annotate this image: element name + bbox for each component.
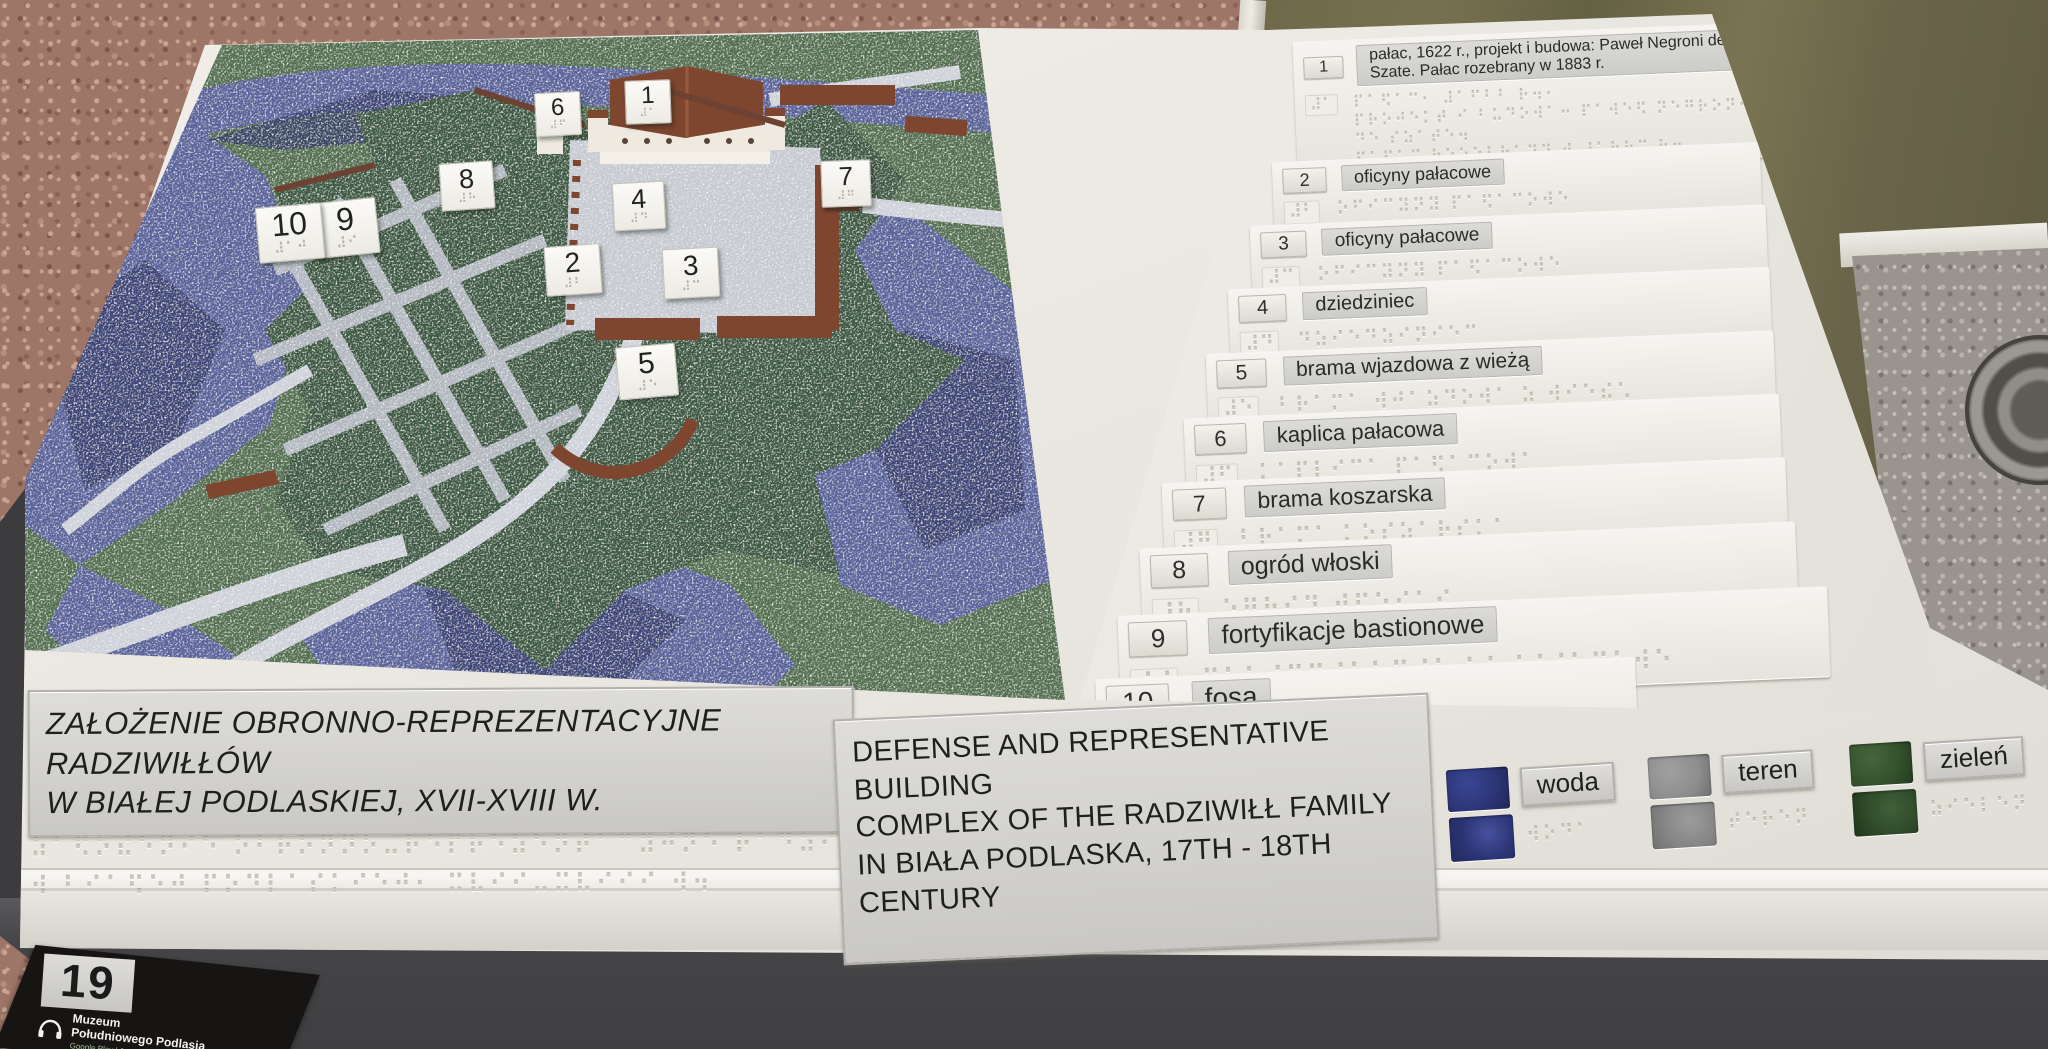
- legend-label: brama wjazdowa z wieżą: [1283, 346, 1543, 386]
- legend-label: oficyny pałacowe: [1341, 159, 1505, 192]
- legend-number: 1: [1303, 55, 1344, 79]
- legend-number: 9: [1128, 619, 1189, 656]
- marker-number: 1: [641, 82, 655, 109]
- legend-label: brama koszarska: [1244, 477, 1446, 517]
- braille-text: ⠺⠕⠙⠁: [1525, 819, 1593, 847]
- legend-number: 2: [1282, 166, 1327, 193]
- marker-braille: ⠼⠛: [822, 189, 870, 203]
- legend-label: oficyny pałacowe: [1321, 222, 1493, 256]
- marker-braille: ⠼⠃: [547, 275, 602, 292]
- polish-title-plate: ZAŁOŻENIE OBRONNO-REPREZENTACYJNE RADZIW…: [28, 686, 855, 837]
- greenery-swatch: [1849, 741, 1914, 787]
- map-marker-tile: 3⠼⠉: [662, 247, 721, 299]
- map-marker-tile: 1⠼⠁: [624, 79, 671, 124]
- marker-braille: ⠼⠁: [626, 107, 670, 120]
- marker-number: 4: [630, 184, 647, 215]
- map-marker-tile: 2⠼⠃: [543, 243, 602, 296]
- marker-number: 5: [637, 346, 657, 380]
- polish-title-line2: W BIAŁEJ PODLASKIEJ, XVII-XVIII W.: [46, 779, 836, 823]
- exhibit-number: 19: [41, 954, 136, 1013]
- terrain-swatch: [1647, 754, 1712, 800]
- marker-number: 10: [270, 205, 309, 244]
- marker-braille: ⠼⠙: [614, 212, 665, 227]
- headphones-icon: [37, 1017, 65, 1040]
- legend-label: dziedziniec: [1302, 287, 1428, 320]
- marker-number: 6: [550, 94, 565, 122]
- marker-braille: ⠼⠉: [664, 279, 719, 295]
- marker-number: 3: [682, 250, 699, 282]
- marker-braille: ⠼⠁⠚: [259, 239, 324, 260]
- map-marker-tile: 7⠼⠛: [820, 159, 872, 207]
- marker-number: 8: [458, 164, 475, 195]
- legend-label: kaplica pałacowa: [1263, 413, 1458, 452]
- map-marker-tile: 4⠼⠙: [612, 181, 666, 232]
- legend-number: 5: [1216, 358, 1267, 388]
- legend-label: ogród włoski: [1227, 544, 1393, 585]
- museum-tactile-exhibit: 1⠼⠁ 2⠼⠃ 3⠼⠉ 4⠼⠙ 5⠼⠑ 6⠼⠋ 7⠼⠛ 8⠼⠓ 9⠼⠊ 10⠼⠁…: [0, 0, 2048, 1049]
- map-marker-tile: 10⠼⠁⠚: [255, 202, 326, 263]
- legend-label: pałac, 1622 r., projekt i budowa: Paweł …: [1356, 29, 1752, 86]
- legend-number: 8: [1150, 552, 1209, 587]
- marker-number: 2: [564, 247, 582, 279]
- marker-braille: ⠼⠋: [536, 119, 581, 133]
- english-title-plate: DEFENSE AND REPRESENTATIVE BUILDING COMP…: [833, 693, 1440, 966]
- greenery-texture-swatch: [1852, 789, 1919, 837]
- legend-label: fortyfikacje bastionowe: [1208, 606, 1498, 654]
- marker-braille: ⠼⠓: [442, 192, 495, 208]
- braille-number-tile: ⠼⠃: [1283, 200, 1320, 225]
- polish-title-braille: ⠵⠁⠫⠕⠮⠑⠝⠊⠑ ⠕⠃⠗⠕⠝⠝⠕⠤⠗⠑⠏⠗⠑⠵⠑⠝⠞⠁⠉⠽⠚⠝⠑ ⠗⠁⠙⠵⠊⠺…: [30, 826, 969, 906]
- legend-number: 3: [1260, 230, 1307, 258]
- water-swatch: [1446, 766, 1511, 812]
- courtyard: [565, 140, 830, 335]
- terrain-texture-swatch: [1650, 802, 1717, 850]
- legend-number: 4: [1238, 293, 1287, 322]
- braille-number-tile: ⠼⠁: [1305, 94, 1339, 116]
- water-texture-swatch: [1449, 814, 1516, 862]
- legend-number: 6: [1194, 422, 1247, 454]
- legend-number: 7: [1172, 487, 1227, 520]
- marker-braille: ⠼⠑: [619, 377, 678, 396]
- marker-braille: ⠼⠊: [316, 233, 379, 255]
- color-label: zieleń: [1923, 736, 2025, 781]
- map-marker-tile: 5⠼⠑: [615, 342, 679, 400]
- marker-number: 9: [334, 200, 355, 238]
- marker-number: 7: [838, 161, 854, 191]
- braille-text: ⠞⠑⠗⠑⠝: [1727, 806, 1812, 835]
- color-label: teren: [1721, 749, 1815, 794]
- map-marker-tile: 6⠼⠋: [534, 91, 582, 137]
- map-marker-tile: 8⠼⠓: [438, 160, 495, 212]
- polish-title-line1: ZAŁOŻENIE OBRONNO-REPREZENTACYJNE RADZIW…: [46, 700, 836, 783]
- color-label: woda: [1520, 761, 1616, 806]
- braille-text: ⠵⠊⠑⠇⠑⠝: [1928, 792, 2029, 822]
